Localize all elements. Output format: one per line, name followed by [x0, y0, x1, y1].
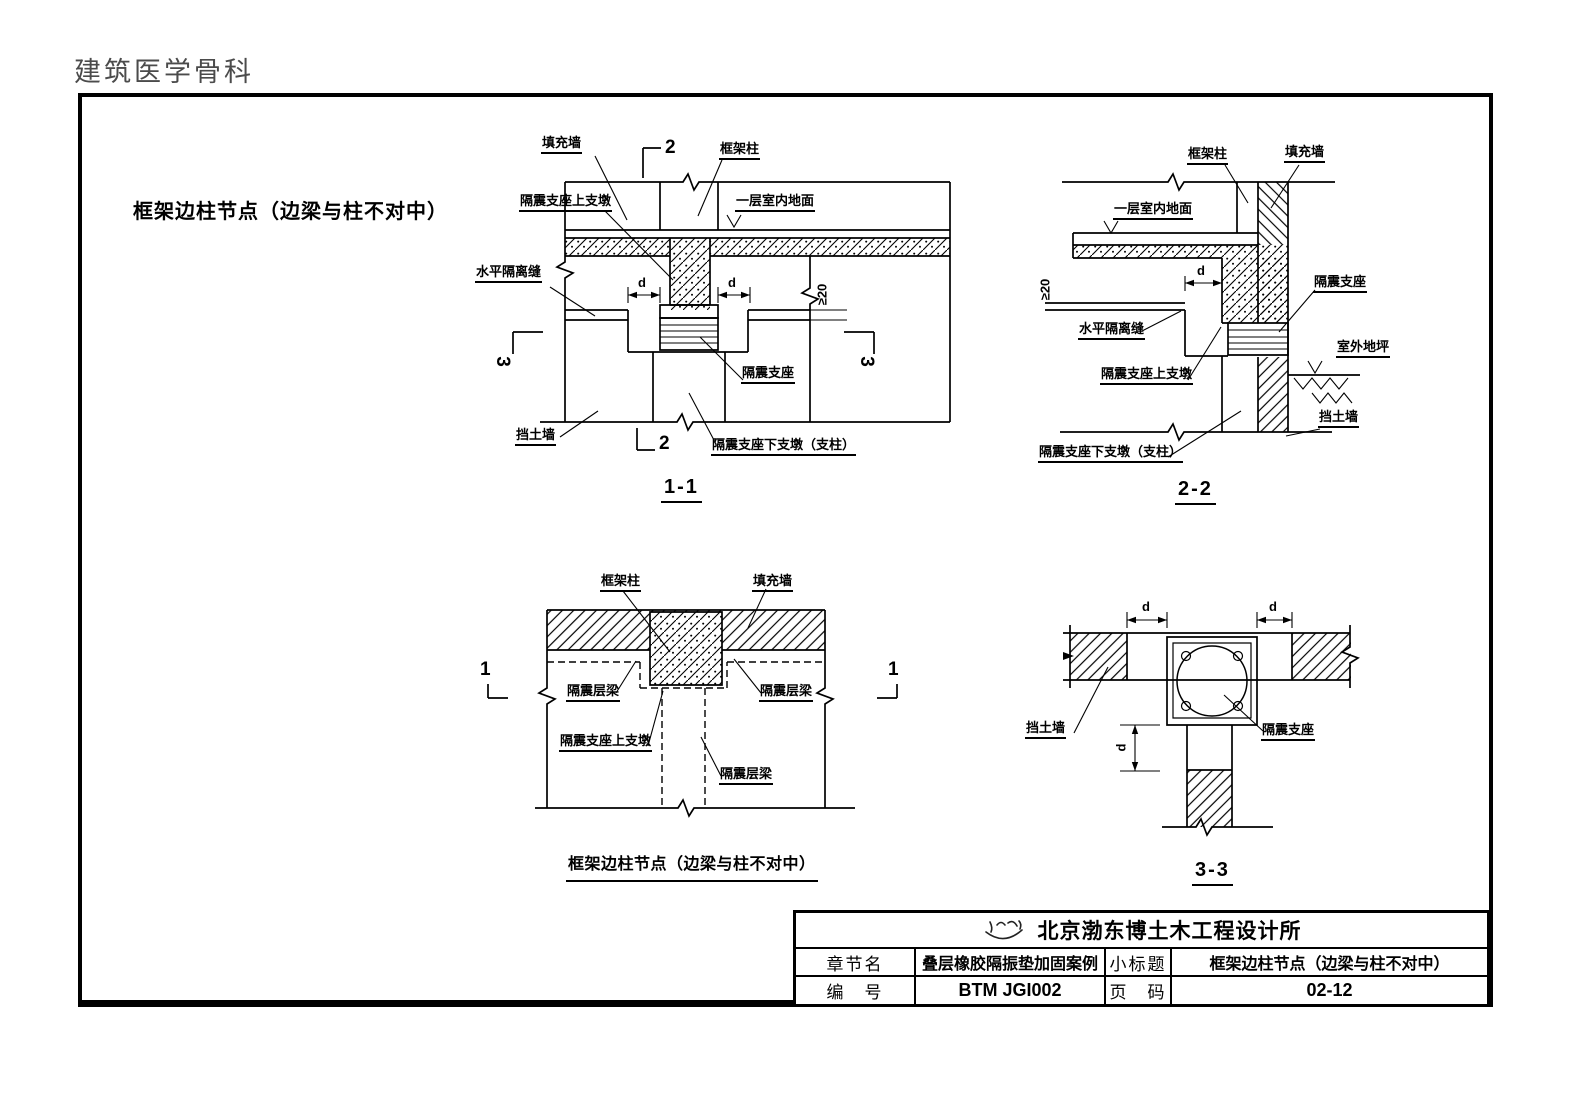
- leader-isolator: [700, 337, 743, 380]
- label-horizontal-joint: 水平隔离缝: [1078, 322, 1145, 340]
- label-isolator: 隔震支座: [741, 366, 795, 384]
- bottom-line: [535, 800, 855, 816]
- ground-line: [540, 414, 950, 430]
- label-lower-pier: 隔震支座下支墩（支柱）: [711, 438, 856, 456]
- floor-slab-hatch: [565, 238, 950, 256]
- section-mark-2-top: 2: [665, 138, 676, 157]
- label-isolator: 隔震支座: [1313, 275, 1367, 293]
- company-logo-icon: [982, 916, 1026, 944]
- title-block-company-row: 北京渤东博土木工程设计所: [796, 913, 1487, 947]
- page-label: 页 码: [1104, 975, 1170, 1004]
- caption-2-2: 2-2: [1175, 478, 1216, 505]
- leader-iso-beam-right: [734, 659, 761, 693]
- figure-title: 框架边柱节点（边梁与柱不对中）: [133, 195, 448, 224]
- dim-d-right-text: d: [1269, 600, 1277, 613]
- retaining-wall-hatch-right: [1292, 633, 1351, 680]
- outdoor-level-marker: [1308, 361, 1322, 373]
- label-isolator: 隔震支座: [1261, 723, 1315, 741]
- section-2-2: 框架柱 填充墙 一层室内地面 d ≥20 隔震支座 水平隔离缝 室外地坪 隔震支…: [1020, 135, 1490, 515]
- dim-min20-text: ≥20: [815, 284, 828, 306]
- bolt-3: [1182, 702, 1191, 711]
- bolt-2: [1234, 652, 1243, 661]
- label-fill-wall: 填充墙: [1284, 145, 1325, 163]
- pier-outer-square: [1167, 637, 1257, 725]
- label-iso-beam-left: 隔震层梁: [566, 684, 620, 702]
- soil-hatch-row1: [1294, 378, 1348, 389]
- isolator-bearing: [1228, 323, 1288, 355]
- label-indoor-floor: 一层室内地面: [1113, 202, 1193, 220]
- label-frame-column: 框架柱: [600, 574, 641, 592]
- floor-slab-hatch: [1073, 245, 1258, 258]
- leader-lower-pier: [689, 393, 715, 442]
- page-header-text: 建筑医学骨科: [74, 50, 254, 89]
- number-value: BTM JGI002: [914, 975, 1104, 1004]
- subtitle-label: 小标题: [1104, 947, 1170, 975]
- section-cut-marks: [488, 684, 897, 698]
- top-beam-line: [565, 174, 950, 190]
- number-label: 编 号: [796, 975, 914, 1004]
- dim-d-left-text: d: [1142, 600, 1150, 613]
- label-upper-pier: 隔震支座上支墩: [1100, 367, 1193, 385]
- leader-iso-beam-bottom: [701, 737, 721, 776]
- horizontal-joint-lines: [1045, 303, 1185, 310]
- floor-level-marker: [1104, 221, 1118, 233]
- leader-horizontal-joint: [550, 287, 595, 316]
- section-mark-3-right: 3: [857, 356, 876, 367]
- upper-pier-hatch: [670, 238, 710, 310]
- section-mark-2-bottom: 2: [659, 434, 670, 453]
- upper-pier-hatch: [1222, 258, 1288, 323]
- label-lower-pier: 隔震支座下支墩（支柱）: [1038, 445, 1183, 463]
- soil-hatch-row2: [1312, 393, 1352, 403]
- section-3-3: d d 挡土墙 d 隔震支座 3-3: [1020, 595, 1440, 895]
- label-indoor-floor: 一层室内地面: [735, 194, 815, 212]
- title-block: 北京渤东博土木工程设计所 章节名 叠层橡胶隔振垫加固案例 小标题 框架边柱节点（…: [793, 910, 1490, 1007]
- caption-1-1: 1-1: [661, 476, 702, 503]
- label-iso-beam-right: 隔震层梁: [759, 684, 813, 702]
- plan-view-drawing: [460, 560, 900, 900]
- dim-min20-text: ≥20: [1038, 279, 1051, 301]
- section-1-1-drawing: [455, 130, 965, 515]
- top-beam-line: [1062, 174, 1335, 190]
- label-fill-wall: 填充墙: [752, 574, 793, 592]
- chapter-label: 章节名: [796, 947, 914, 975]
- section-mark-3-left: 3: [493, 356, 512, 367]
- lower-column-hatch: [1187, 770, 1232, 827]
- dim-d-left-text: d: [638, 276, 646, 289]
- bolt-1: [1182, 652, 1191, 661]
- label-iso-beam-bottom: 隔震层梁: [719, 767, 773, 785]
- bolt-4: [1234, 702, 1243, 711]
- caption-plan: 框架边柱节点（边梁与柱不对中）: [566, 850, 818, 882]
- label-horizontal-joint: 水平隔离缝: [475, 265, 542, 283]
- company-name: 北京渤东博土木工程设计所: [1038, 915, 1302, 945]
- left-wall-line: [557, 182, 573, 422]
- dim-d-text: d: [1197, 264, 1205, 277]
- section-1-1: 填充墙 2 框架柱 隔震支座上支墩 一层室内地面 水平隔离缝 d d ≥20 3…: [455, 130, 965, 515]
- retaining-wall-hatch-left: [1070, 633, 1127, 680]
- frame-column-hatch: [650, 612, 722, 685]
- label-frame-column: 框架柱: [1187, 147, 1228, 165]
- label-upper-pier: 隔震支座上支墩: [519, 194, 612, 212]
- isolator-circle: [1177, 646, 1247, 716]
- section-mark-1-left: 1: [480, 660, 491, 679]
- dim-d-vertical-text: d: [1114, 744, 1127, 752]
- dim-min20-ticks: [810, 310, 847, 320]
- isolator-bearing: [660, 318, 718, 350]
- caption-3-3: 3-3: [1192, 859, 1233, 886]
- chapter-value: 叠层橡胶隔振垫加固案例: [914, 947, 1104, 975]
- plan-view: 框架柱 填充墙 1 1 隔震层梁 隔震层梁 隔震支座上支墩 隔震层梁 框架边柱节…: [460, 560, 900, 900]
- section-3-3-drawing: [1020, 595, 1440, 895]
- retaining-wall-hatch: [1258, 357, 1288, 432]
- page-value: 02-12: [1170, 975, 1487, 1004]
- ground-line: [1060, 424, 1332, 440]
- dim-d-right-text: d: [728, 276, 736, 289]
- subtitle-value: 框架边柱节点（边梁与柱不对中）: [1170, 947, 1487, 975]
- label-upper-pier: 隔震支座上支墩: [559, 734, 652, 752]
- leader-horizontal-joint: [1142, 311, 1181, 331]
- title-block-grid: 章节名 叠层橡胶隔振垫加固案例 小标题 框架边柱节点（边梁与柱不对中） 编 号 …: [796, 947, 1487, 1004]
- label-retaining-wall: 挡土墙: [1318, 410, 1359, 428]
- floor-level-marker: [727, 215, 741, 227]
- section-mark-1-right: 1: [888, 660, 899, 679]
- lower-pier-lines: [653, 352, 725, 422]
- label-fill-wall: 填充墙: [541, 136, 582, 154]
- label-outdoor-ground: 室外地坪: [1336, 340, 1390, 358]
- label-retaining-wall: 挡土墙: [1025, 721, 1066, 739]
- drawing-sheet: 建筑医学骨科 框架边柱节点（边梁与柱不对中）: [0, 0, 1571, 1098]
- label-frame-column: 框架柱: [719, 142, 760, 160]
- fill-wall-hatch: [1258, 182, 1288, 245]
- label-retaining-wall: 挡土墙: [515, 428, 556, 446]
